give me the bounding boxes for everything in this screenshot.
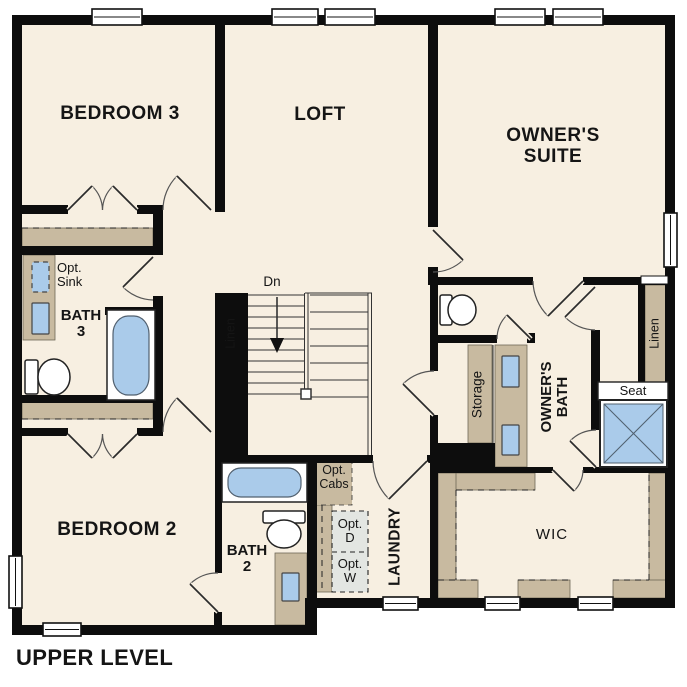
wall	[137, 428, 163, 436]
wall	[12, 15, 22, 635]
toilet-icon	[38, 359, 70, 395]
opt-sink-label: Opt. Sink	[57, 261, 101, 289]
opt-dryer-line1: Opt.	[331, 517, 369, 531]
opt-sink-icon	[32, 262, 49, 292]
bathtub-icon	[113, 316, 149, 395]
stairs-down-label: Dn	[254, 275, 290, 290]
wall	[22, 246, 163, 255]
bath3-line1: BATH	[56, 308, 106, 324]
toilet-icon	[448, 295, 476, 325]
opt-cabs-label: Opt. Cabs	[314, 464, 354, 491]
sink-icon	[282, 573, 299, 601]
room-label-loft: LOFT	[270, 105, 370, 126]
wall	[22, 428, 68, 436]
room-label-bath2: BATH 2	[222, 543, 272, 575]
sink-icon	[502, 425, 519, 455]
wall	[430, 443, 495, 473]
opt-dryer-line2: D	[331, 531, 369, 545]
wic-shelf-left	[438, 473, 456, 598]
sink-icon	[32, 303, 49, 334]
wic-shelf-bottom3	[613, 580, 667, 598]
room-label-owners-bath: OWNER'S BATH	[539, 342, 575, 452]
linen-right-label: Linen	[649, 306, 664, 362]
wall	[215, 455, 373, 463]
opt-cabs-line2: Cabs	[314, 478, 354, 492]
railing-newel	[301, 389, 311, 399]
bath2-line1: BATH	[222, 543, 272, 559]
bath3-line2: 3	[56, 324, 106, 340]
wic-shelf-right	[649, 473, 667, 598]
seat-label: Seat	[598, 384, 668, 398]
owners-bath-line1: OWNER'S	[539, 342, 555, 452]
wall	[215, 15, 225, 212]
room-label-bedroom3: BEDROOM 3	[40, 104, 200, 125]
wall	[430, 277, 533, 285]
opt-dryer-label: Opt. D	[331, 517, 369, 545]
opt-sink-line2: Sink	[57, 275, 101, 289]
wall	[22, 205, 68, 214]
wall	[438, 335, 497, 343]
toilet-icon	[25, 360, 38, 394]
opt-washer-line1: Opt.	[331, 557, 369, 571]
owners-bath-line2: BATH	[555, 342, 571, 452]
linen-left-label: Linen	[225, 306, 240, 362]
bath2-line2: 2	[222, 559, 272, 575]
wall	[430, 285, 438, 371]
room-label-bedroom2: BEDROOM 2	[37, 520, 197, 541]
wall	[214, 612, 222, 625]
floor-plan: BEDROOM 3 LOFT OWNER'S SUITE BEDROOM 2 B…	[0, 0, 687, 687]
wall	[591, 330, 600, 430]
toilet-icon	[267, 520, 301, 548]
wall	[430, 415, 438, 443]
owners-suite-line1: OWNER'S	[473, 126, 633, 147]
wall	[430, 473, 438, 598]
wic-shelf-bottom1	[438, 580, 478, 598]
wall	[665, 15, 675, 608]
sink-icon	[502, 356, 519, 387]
room-label-wic: WIC	[512, 527, 592, 543]
opt-washer-line2: W	[331, 571, 369, 585]
wall	[215, 463, 222, 573]
linen-right-opening	[641, 276, 668, 284]
wall	[638, 285, 645, 382]
bathtub-icon	[228, 468, 301, 497]
wall	[495, 467, 553, 473]
room-label-laundry: LAUNDRY	[388, 497, 407, 597]
room-label-bath3: BATH 3	[56, 308, 106, 340]
opt-sink-line1: Opt.	[57, 261, 101, 275]
plan-title: UPPER LEVEL	[16, 646, 276, 670]
wall	[428, 15, 438, 227]
opt-washer-label: Opt. W	[331, 557, 369, 585]
wic-shelf-bottom2	[518, 580, 570, 598]
laundry-counter	[315, 505, 332, 592]
owners-suite-line2: SUITE	[473, 147, 633, 168]
opt-cabs-line1: Opt.	[314, 464, 354, 478]
room-label-owners-suite: OWNER'S SUITE	[473, 126, 633, 167]
storage-label: Storage	[471, 347, 488, 443]
bedroom3-closet-shelf	[22, 228, 153, 247]
